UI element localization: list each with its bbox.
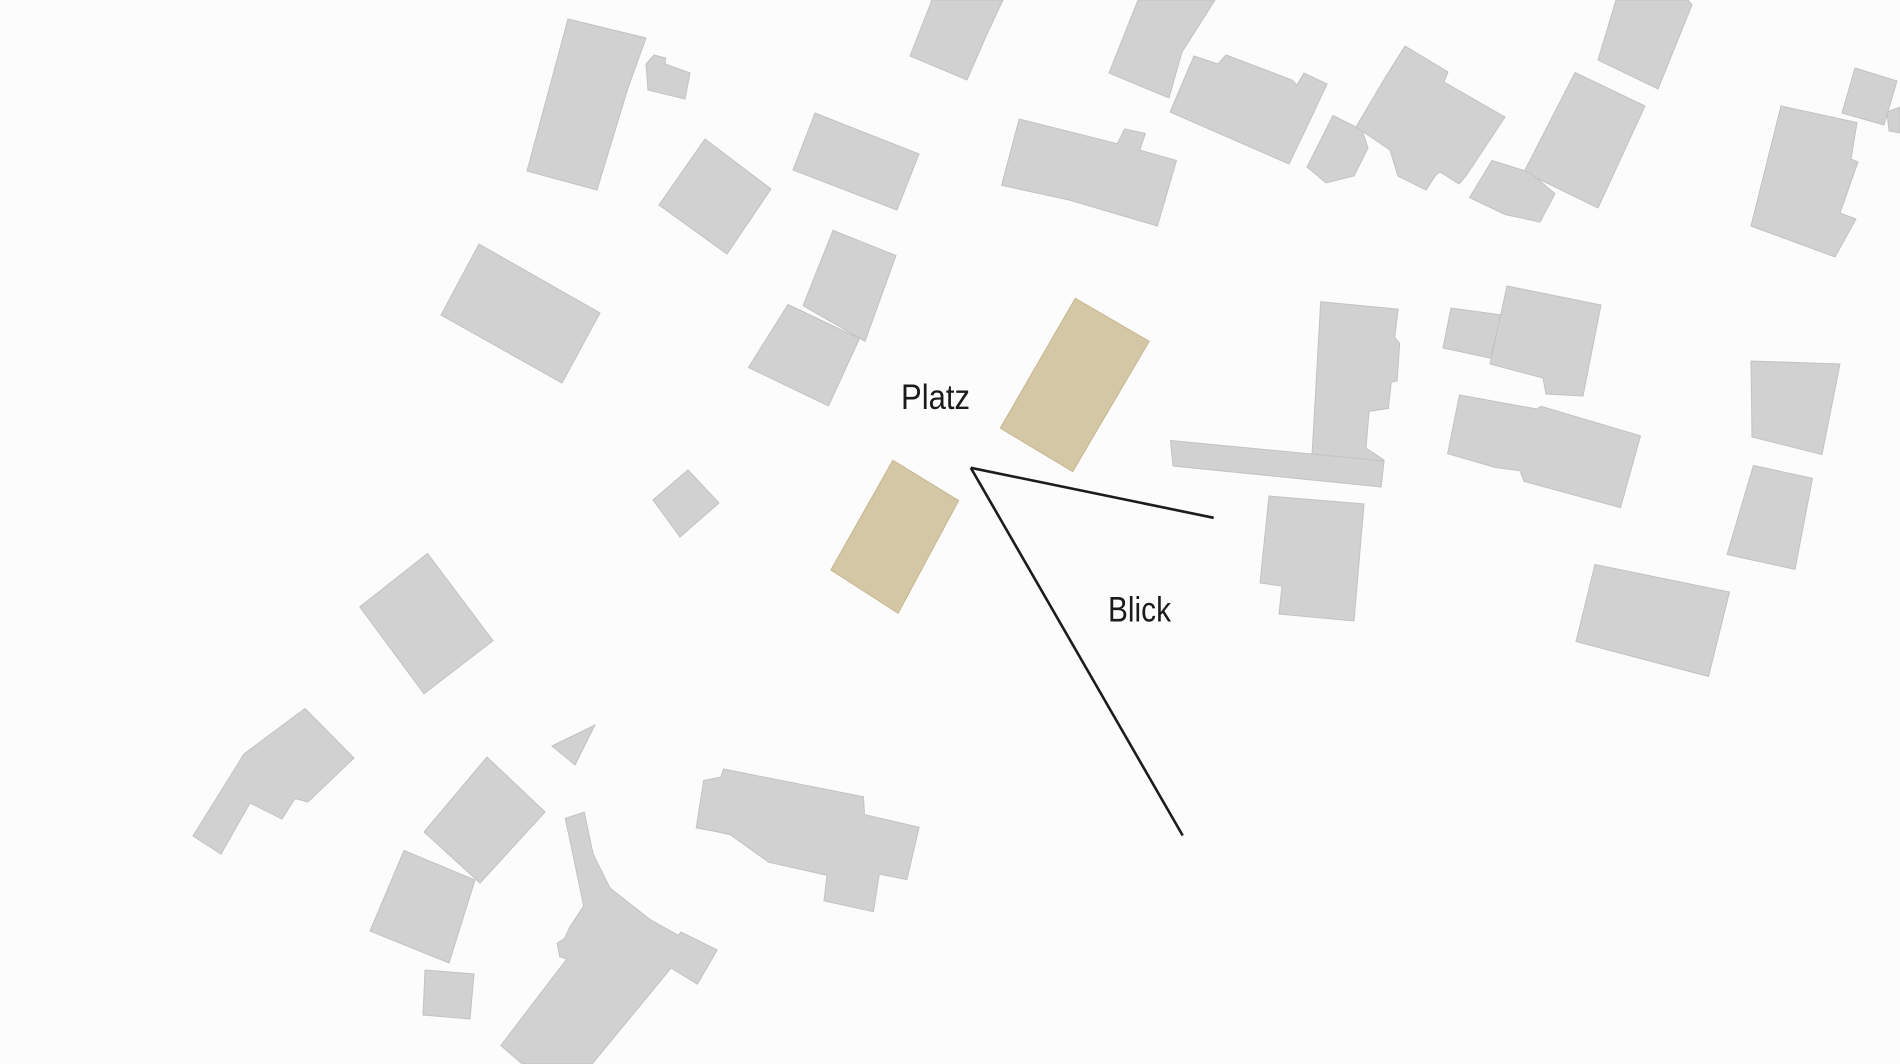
svg-text:Blick: Blick <box>1108 591 1171 630</box>
svg-text:Platz: Platz <box>901 378 970 417</box>
